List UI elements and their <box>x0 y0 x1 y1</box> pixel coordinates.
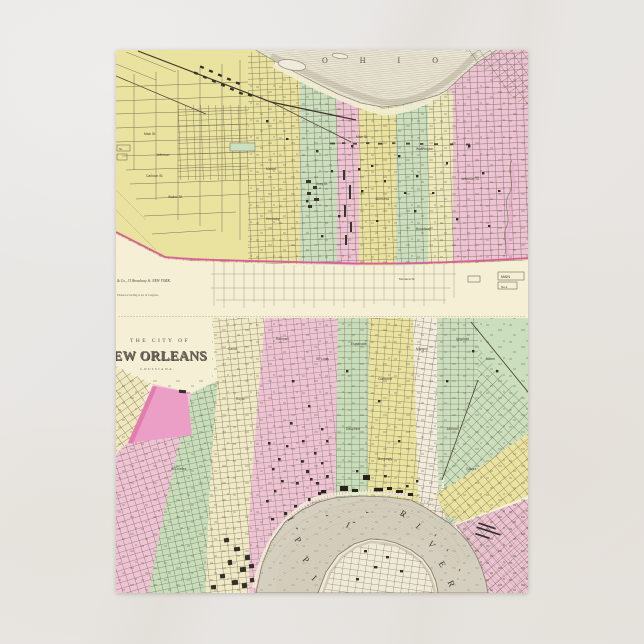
svg-text:Walnut St.: Walnut St. <box>168 195 183 199</box>
svg-text:LOUISIANA.: LOUISIANA. <box>140 367 175 371</box>
svg-text:Esplanade: Esplanade <box>351 342 367 346</box>
svg-text:O H I O: O H I O <box>322 56 453 65</box>
svg-text:Montana St.: Montana St. <box>399 277 415 281</box>
svg-text:Royal: Royal <box>236 397 245 401</box>
svg-text:Urquhart: Urquhart <box>456 337 469 341</box>
svg-text:Main St.: Main St. <box>356 135 368 139</box>
svg-text:Kentucky: Kentucky <box>266 217 280 221</box>
svg-text:Market: Market <box>266 167 276 171</box>
svg-text:Marigny: Marigny <box>416 347 428 351</box>
svg-text:Jefferson St.: Jefferson St. <box>461 177 480 181</box>
svg-text:Gray St.: Gray St. <box>316 182 328 186</box>
svg-text:Villere: Villere <box>486 357 495 361</box>
svg-text:Calhoun St.: Calhoun St. <box>146 174 163 178</box>
svg-text:Jefferson: Jefferson <box>156 153 170 157</box>
svg-text:Claiborne: Claiborne <box>378 377 392 381</box>
svg-text:Main St.: Main St. <box>144 132 156 136</box>
svg-text:St.Charles: St.Charles <box>171 467 187 471</box>
svg-text:No.2: No.2 <box>501 285 508 289</box>
svg-text:Broadway: Broadway <box>416 227 431 231</box>
svg-text:Entered according to act of Co: Entered according to act of Congress <box>117 294 158 297</box>
svg-text:Canal: Canal <box>228 347 237 351</box>
svg-text:THE CITY OF: THE CITY OF <box>130 338 190 344</box>
svg-text:Rampart: Rampart <box>276 337 289 341</box>
svg-text:MAIN: MAIN <box>501 275 510 279</box>
svg-text:NEW ORLEANS: NEW ORLEANS <box>116 348 207 363</box>
svg-text:Washington: Washington <box>416 147 433 151</box>
svg-text:Chestnut: Chestnut <box>376 197 389 201</box>
svg-text:Johnson: Johnson <box>446 427 459 431</box>
svg-text:Dauphine: Dauphine <box>346 427 360 431</box>
svg-text:Galvez: Galvez <box>466 467 477 471</box>
svg-text:St.: St. <box>119 147 123 151</box>
svg-text:St. Louis: St. Louis <box>316 357 329 361</box>
svg-text:Burgundy: Burgundy <box>378 457 392 461</box>
